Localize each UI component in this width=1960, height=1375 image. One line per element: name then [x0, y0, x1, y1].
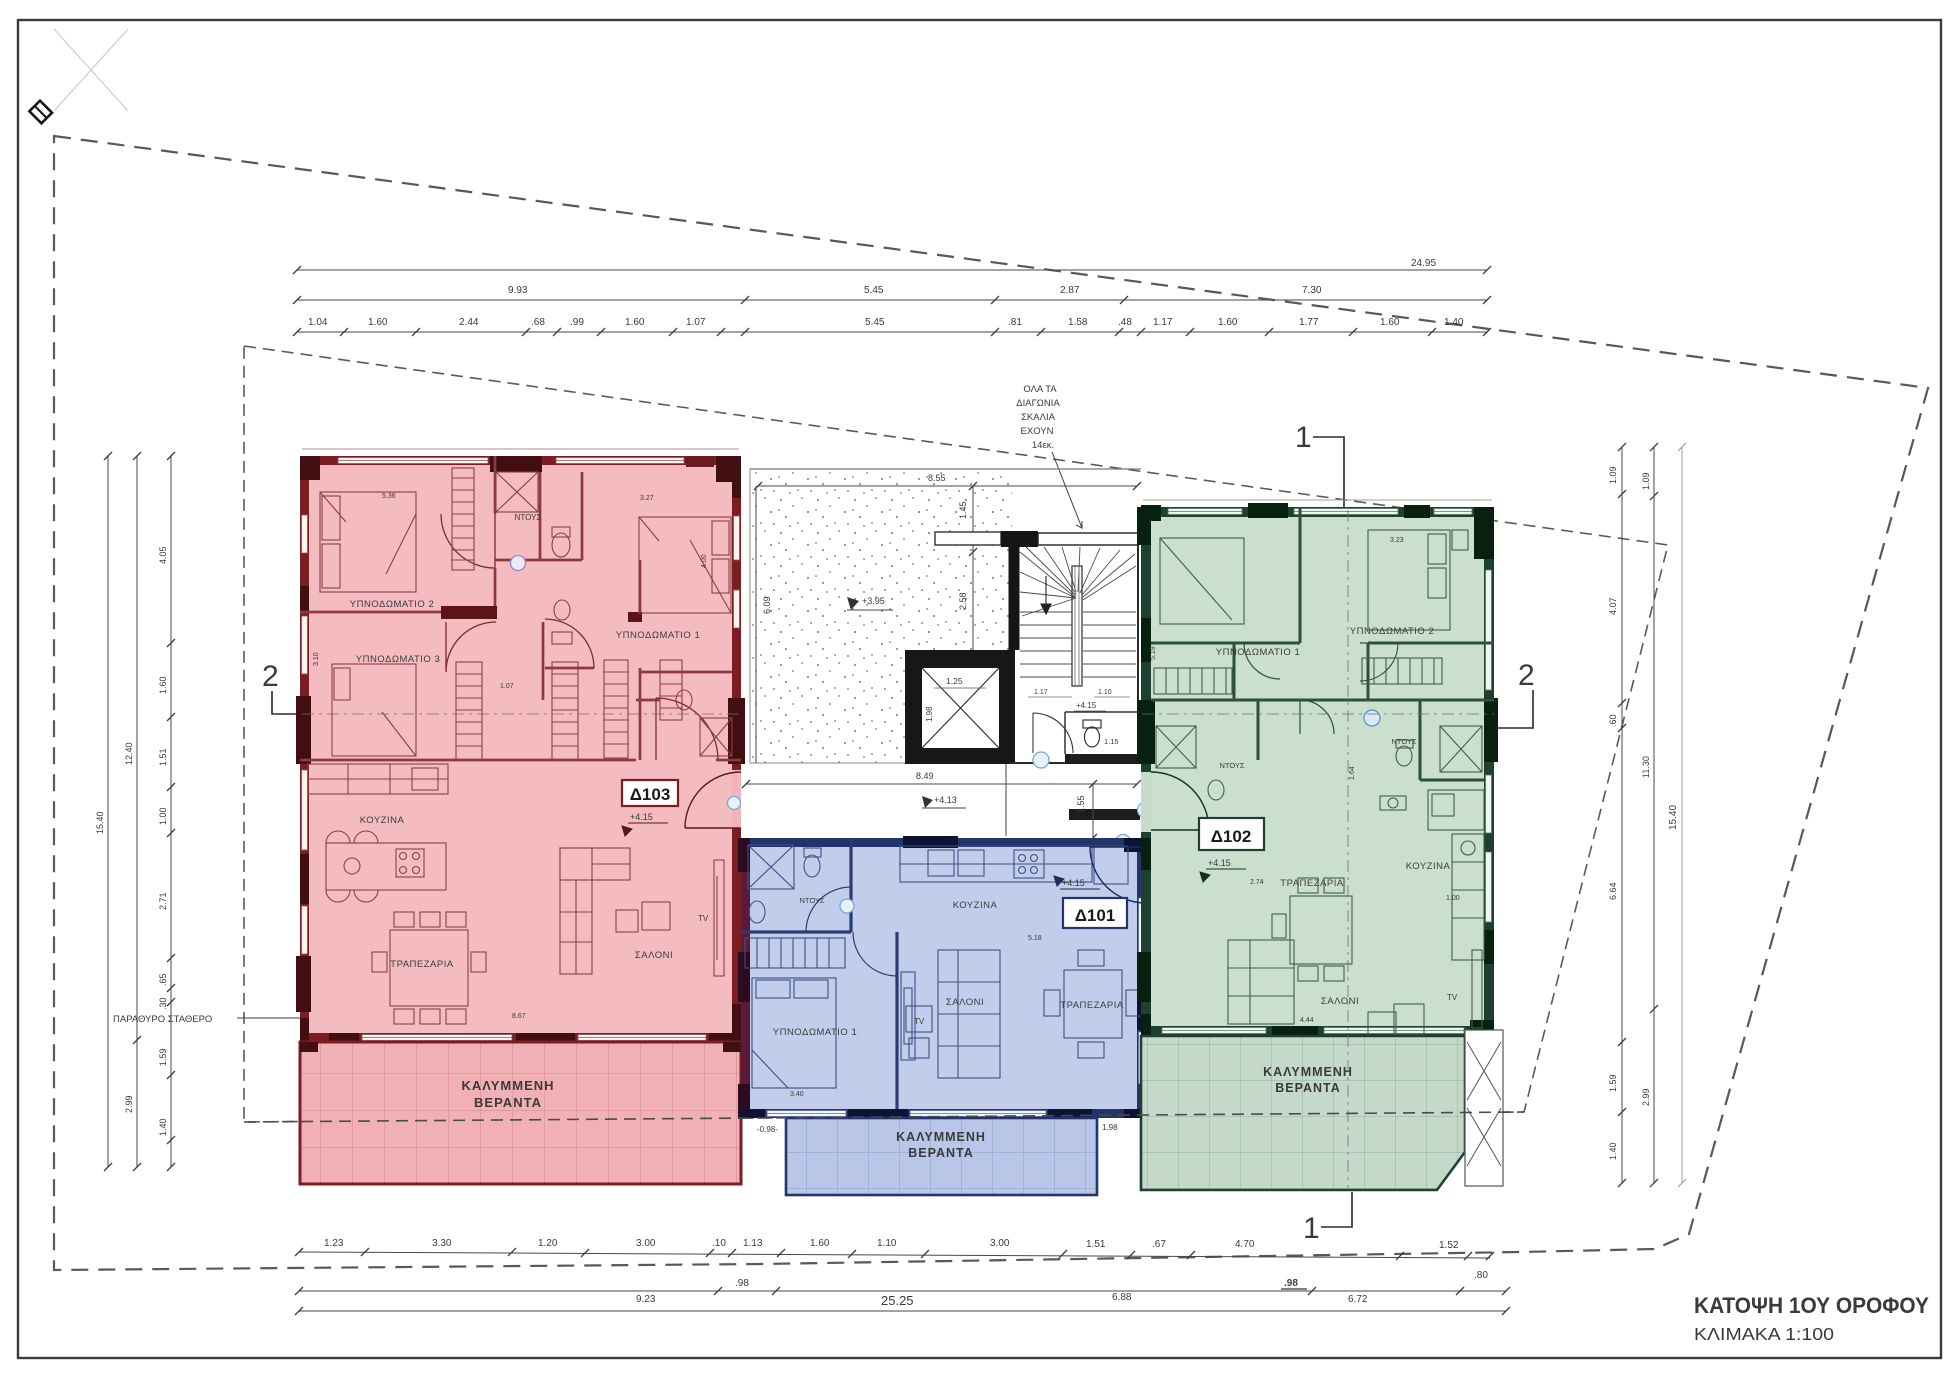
svg-text:1.51: 1.51: [158, 748, 168, 766]
svg-text:1.04: 1.04: [308, 317, 328, 328]
svg-text:2.74: 2.74: [1250, 879, 1264, 886]
svg-text:+4.15: +4.15: [1076, 701, 1097, 710]
svg-text:ΣΑΛΟΝΙ: ΣΑΛΟΝΙ: [635, 950, 673, 961]
svg-text:ΣΑΛΟΝΙ: ΣΑΛΟΝΙ: [1321, 996, 1359, 1007]
svg-text:5.45: 5.45: [864, 285, 884, 296]
svg-text:ΝΤΟΥΣ: ΝΤΟΥΣ: [1391, 737, 1416, 746]
svg-text:1.64: 1.64: [1349, 766, 1356, 780]
svg-text:Δ101: Δ101: [1075, 906, 1116, 925]
svg-text:1: 1: [1303, 1212, 1320, 1245]
svg-text:ΚΟΥΖΙΝΑ: ΚΟΥΖΙΝΑ: [1406, 861, 1451, 872]
svg-text:1.60: 1.60: [625, 317, 645, 328]
svg-text:1.55: 1.55: [1076, 795, 1086, 813]
svg-text:1.09: 1.09: [1608, 466, 1618, 484]
svg-text:ΒΕΡΑΝΤΑ: ΒΕΡΑΝΤΑ: [1275, 1081, 1341, 1095]
svg-text:2.99: 2.99: [124, 1095, 134, 1113]
svg-text:9.23: 9.23: [636, 1294, 656, 1305]
svg-text:3.00: 3.00: [636, 1238, 656, 1249]
svg-text:14εκ.: 14εκ.: [1032, 440, 1054, 451]
svg-text:1.98: 1.98: [1102, 1123, 1118, 1132]
svg-text:1.09: 1.09: [1641, 472, 1651, 490]
svg-text:7.30: 7.30: [1302, 285, 1322, 296]
svg-text:1.00: 1.00: [158, 807, 168, 825]
svg-text:ΚΑΛΥΜΜΕΝΗ: ΚΑΛΥΜΜΕΝΗ: [896, 1130, 986, 1144]
svg-text:1.25: 1.25: [946, 676, 963, 686]
svg-text:ΝΤΟΥΣ: ΝΤΟΥΣ: [515, 513, 542, 522]
svg-text:3.23: 3.23: [1390, 537, 1404, 544]
svg-text:.68: .68: [531, 317, 545, 328]
svg-text:.99: .99: [570, 317, 584, 328]
svg-text:ΤΡΑΠΕΖΑΡΙΑ: ΤΡΑΠΕΖΑΡΙΑ: [1280, 878, 1344, 889]
svg-text:1.10: 1.10: [1098, 689, 1112, 696]
svg-text:12.40: 12.40: [124, 742, 134, 765]
svg-text:2: 2: [262, 660, 279, 693]
svg-text:ΝΤΟΥΣ: ΝΤΟΥΣ: [1219, 761, 1244, 770]
svg-text:.67: .67: [1152, 1239, 1166, 1250]
svg-text:1.98: 1.98: [925, 706, 934, 722]
svg-text:.48: .48: [1118, 317, 1132, 328]
svg-text:1.17: 1.17: [1034, 689, 1048, 696]
svg-text:1.59: 1.59: [1608, 1074, 1618, 1092]
svg-text:ΥΠΝΟΔΩΜΑΤΙΟ 3: ΥΠΝΟΔΩΜΑΤΙΟ 3: [356, 654, 441, 665]
svg-text:ΥΠΝΟΔΩΜΑΤΙΟ 1: ΥΠΝΟΔΩΜΑΤΙΟ 1: [616, 630, 701, 641]
svg-text:3.30: 3.30: [432, 1238, 452, 1249]
svg-text:3.40: 3.40: [790, 1091, 804, 1098]
svg-text:1: 1: [1295, 421, 1312, 454]
svg-text:1.77: 1.77: [1299, 317, 1319, 328]
svg-text:1.60: 1.60: [1380, 317, 1400, 328]
svg-text:9.93: 9.93: [508, 285, 528, 296]
svg-text:6.64: 6.64: [1608, 882, 1618, 900]
svg-text:1.60: 1.60: [368, 317, 388, 328]
svg-text:.81: .81: [1008, 317, 1022, 328]
svg-text:1.10: 1.10: [877, 1238, 897, 1249]
svg-text:2.87: 2.87: [1060, 285, 1080, 296]
svg-text:ΔΙΑΓΩΝΙΑ: ΔΙΑΓΩΝΙΑ: [1016, 398, 1060, 409]
svg-text:TV: TV: [698, 914, 709, 923]
svg-text:1.20: 1.20: [538, 1238, 558, 1249]
svg-text:ΚΑΛΥΜΜΕΝΗ: ΚΑΛΥΜΜΕΝΗ: [1263, 1065, 1353, 1079]
svg-text:25.25: 25.25: [881, 1293, 914, 1308]
svg-text:1.60: 1.60: [158, 676, 168, 694]
svg-text:.30: .30: [158, 997, 168, 1010]
svg-text:2.99: 2.99: [1641, 1088, 1651, 1106]
svg-text:3.27: 3.27: [640, 495, 654, 502]
svg-text:1.17: 1.17: [1153, 317, 1173, 328]
svg-text:ΝΤΟΥΣ: ΝΤΟΥΣ: [799, 896, 824, 905]
svg-text:2.71: 2.71: [158, 892, 168, 910]
svg-text:.98: .98: [735, 1278, 749, 1289]
svg-text:ΥΠΝΟΔΩΜΑΤΙΟ 1: ΥΠΝΟΔΩΜΑΤΙΟ 1: [773, 1027, 858, 1038]
svg-text:1.45: 1.45: [958, 501, 968, 519]
svg-text:+4.15: +4.15: [1208, 858, 1231, 868]
svg-text:2.44: 2.44: [459, 317, 479, 328]
svg-text:1.07: 1.07: [500, 683, 514, 690]
svg-text:ΠΑΡΑΘΥΡΟ ΣΤΑΘΕΡΟ: ΠΑΡΑΘΥΡΟ ΣΤΑΘΕΡΟ: [113, 1014, 212, 1025]
svg-text:ΒΕΡΑΝΤΑ: ΒΕΡΑΝΤΑ: [908, 1146, 974, 1160]
svg-text:1.23: 1.23: [324, 1238, 344, 1249]
svg-text:3.10: 3.10: [313, 652, 320, 666]
svg-text:8.49: 8.49: [916, 771, 934, 781]
svg-text:8.67: 8.67: [512, 1013, 526, 1020]
svg-text:ΤΡΑΠΕΖΑΡΙΑ: ΤΡΑΠΕΖΑΡΙΑ: [1060, 1000, 1124, 1011]
svg-text:4.05: 4.05: [158, 546, 168, 564]
svg-text:1.59: 1.59: [158, 1048, 168, 1066]
svg-text:5.19: 5.19: [1150, 646, 1157, 660]
svg-text:1.40: 1.40: [1608, 1142, 1618, 1160]
svg-text:.98: .98: [1284, 1278, 1298, 1289]
svg-text:1.15: 1.15: [1104, 737, 1119, 746]
svg-text:5.18: 5.18: [1028, 935, 1042, 942]
svg-text:1.40: 1.40: [158, 1118, 168, 1136]
svg-text:.10: .10: [712, 1238, 726, 1249]
svg-text:+4.15: +4.15: [630, 812, 653, 822]
svg-text:6.09: 6.09: [762, 596, 772, 614]
svg-text:ΚΛΙΜΑΚΑ 1:100: ΚΛΙΜΑΚΑ 1:100: [1694, 1324, 1834, 1344]
svg-text:TV: TV: [914, 1017, 925, 1026]
svg-text:1.52: 1.52: [1439, 1240, 1459, 1251]
svg-text:Δ102: Δ102: [1211, 827, 1252, 846]
svg-text:4.07: 4.07: [1608, 597, 1618, 615]
svg-text:1.60: 1.60: [1218, 317, 1238, 328]
svg-text:ΣΚΑΛΙΑ: ΣΚΑΛΙΑ: [1021, 412, 1056, 423]
svg-text:ΚΟΥΖΙΝΑ: ΚΟΥΖΙΝΑ: [953, 900, 998, 911]
svg-text:.60: .60: [1608, 714, 1618, 727]
svg-text:+4.15: +4.15: [1062, 878, 1085, 888]
svg-text:1.58: 1.58: [1068, 317, 1088, 328]
svg-text:1.60: 1.60: [810, 1238, 830, 1249]
svg-text:5.36: 5.36: [382, 493, 396, 500]
svg-text:1.40: 1.40: [1444, 317, 1464, 328]
svg-text:4.44: 4.44: [1300, 1017, 1314, 1024]
svg-text:1.07: 1.07: [686, 317, 706, 328]
svg-text:+3.95: +3.95: [862, 596, 885, 606]
svg-text:ΥΠΝΟΔΩΜΑΤΙΟ 2: ΥΠΝΟΔΩΜΑΤΙΟ 2: [1350, 626, 1435, 637]
svg-text:.80: .80: [1474, 1270, 1488, 1281]
svg-text:-0.98-: -0.98-: [757, 1125, 778, 1134]
svg-text:5.45: 5.45: [865, 317, 885, 328]
svg-text:ΚΑΛΥΜΜΕΝΗ: ΚΑΛΥΜΜΕΝΗ: [461, 1078, 554, 1093]
svg-text:15.40: 15.40: [95, 811, 105, 834]
svg-text:6.88: 6.88: [1112, 1292, 1132, 1303]
svg-text:1.00: 1.00: [1446, 895, 1460, 902]
svg-text:4.70: 4.70: [1235, 1239, 1255, 1250]
svg-text:ΒΕΡΑΝΤΑ: ΒΕΡΑΝΤΑ: [474, 1095, 542, 1110]
svg-text:1.51: 1.51: [1086, 1239, 1106, 1250]
svg-text:Δ103: Δ103: [630, 785, 671, 804]
svg-text:ΚΟΥΖΙΝΑ: ΚΟΥΖΙΝΑ: [360, 815, 405, 826]
svg-text:ΟΛΑ ΤΑ: ΟΛΑ ΤΑ: [1023, 384, 1057, 395]
svg-text:1.13: 1.13: [743, 1238, 763, 1249]
svg-text:15.40: 15.40: [1668, 805, 1679, 830]
svg-text:ΣΑΛΟΝΙ: ΣΑΛΟΝΙ: [946, 997, 984, 1008]
svg-text:ΚΑΤΟΨΗ 1ΟΥ ΟΡΟΦΟΥ: ΚΑΤΟΨΗ 1ΟΥ ΟΡΟΦΟΥ: [1694, 1293, 1929, 1318]
svg-text:4.00: 4.00: [701, 554, 708, 568]
svg-text:11.30: 11.30: [1641, 756, 1651, 778]
svg-text:ΕΧΟΥΝ: ΕΧΟΥΝ: [1021, 426, 1054, 437]
svg-text:2.58: 2.58: [958, 592, 968, 610]
svg-text:3.00: 3.00: [990, 1238, 1010, 1249]
svg-text:2: 2: [1518, 659, 1535, 692]
svg-text:+4.13: +4.13: [934, 795, 957, 805]
svg-text:8.55: 8.55: [928, 473, 946, 483]
svg-text:.65: .65: [158, 973, 168, 986]
svg-text:ΤΡΑΠΕΖΑΡΙΑ: ΤΡΑΠΕΖΑΡΙΑ: [390, 959, 454, 970]
svg-text:24.95: 24.95: [1411, 258, 1436, 269]
svg-text:ΥΠΝΟΔΩΜΑΤΙΟ 2: ΥΠΝΟΔΩΜΑΤΙΟ 2: [350, 599, 435, 610]
svg-text:6.72: 6.72: [1348, 1294, 1368, 1305]
svg-text:TV: TV: [1447, 993, 1458, 1002]
svg-text:ΥΠΝΟΔΩΜΑΤΙΟ 1: ΥΠΝΟΔΩΜΑΤΙΟ 1: [1216, 647, 1301, 658]
